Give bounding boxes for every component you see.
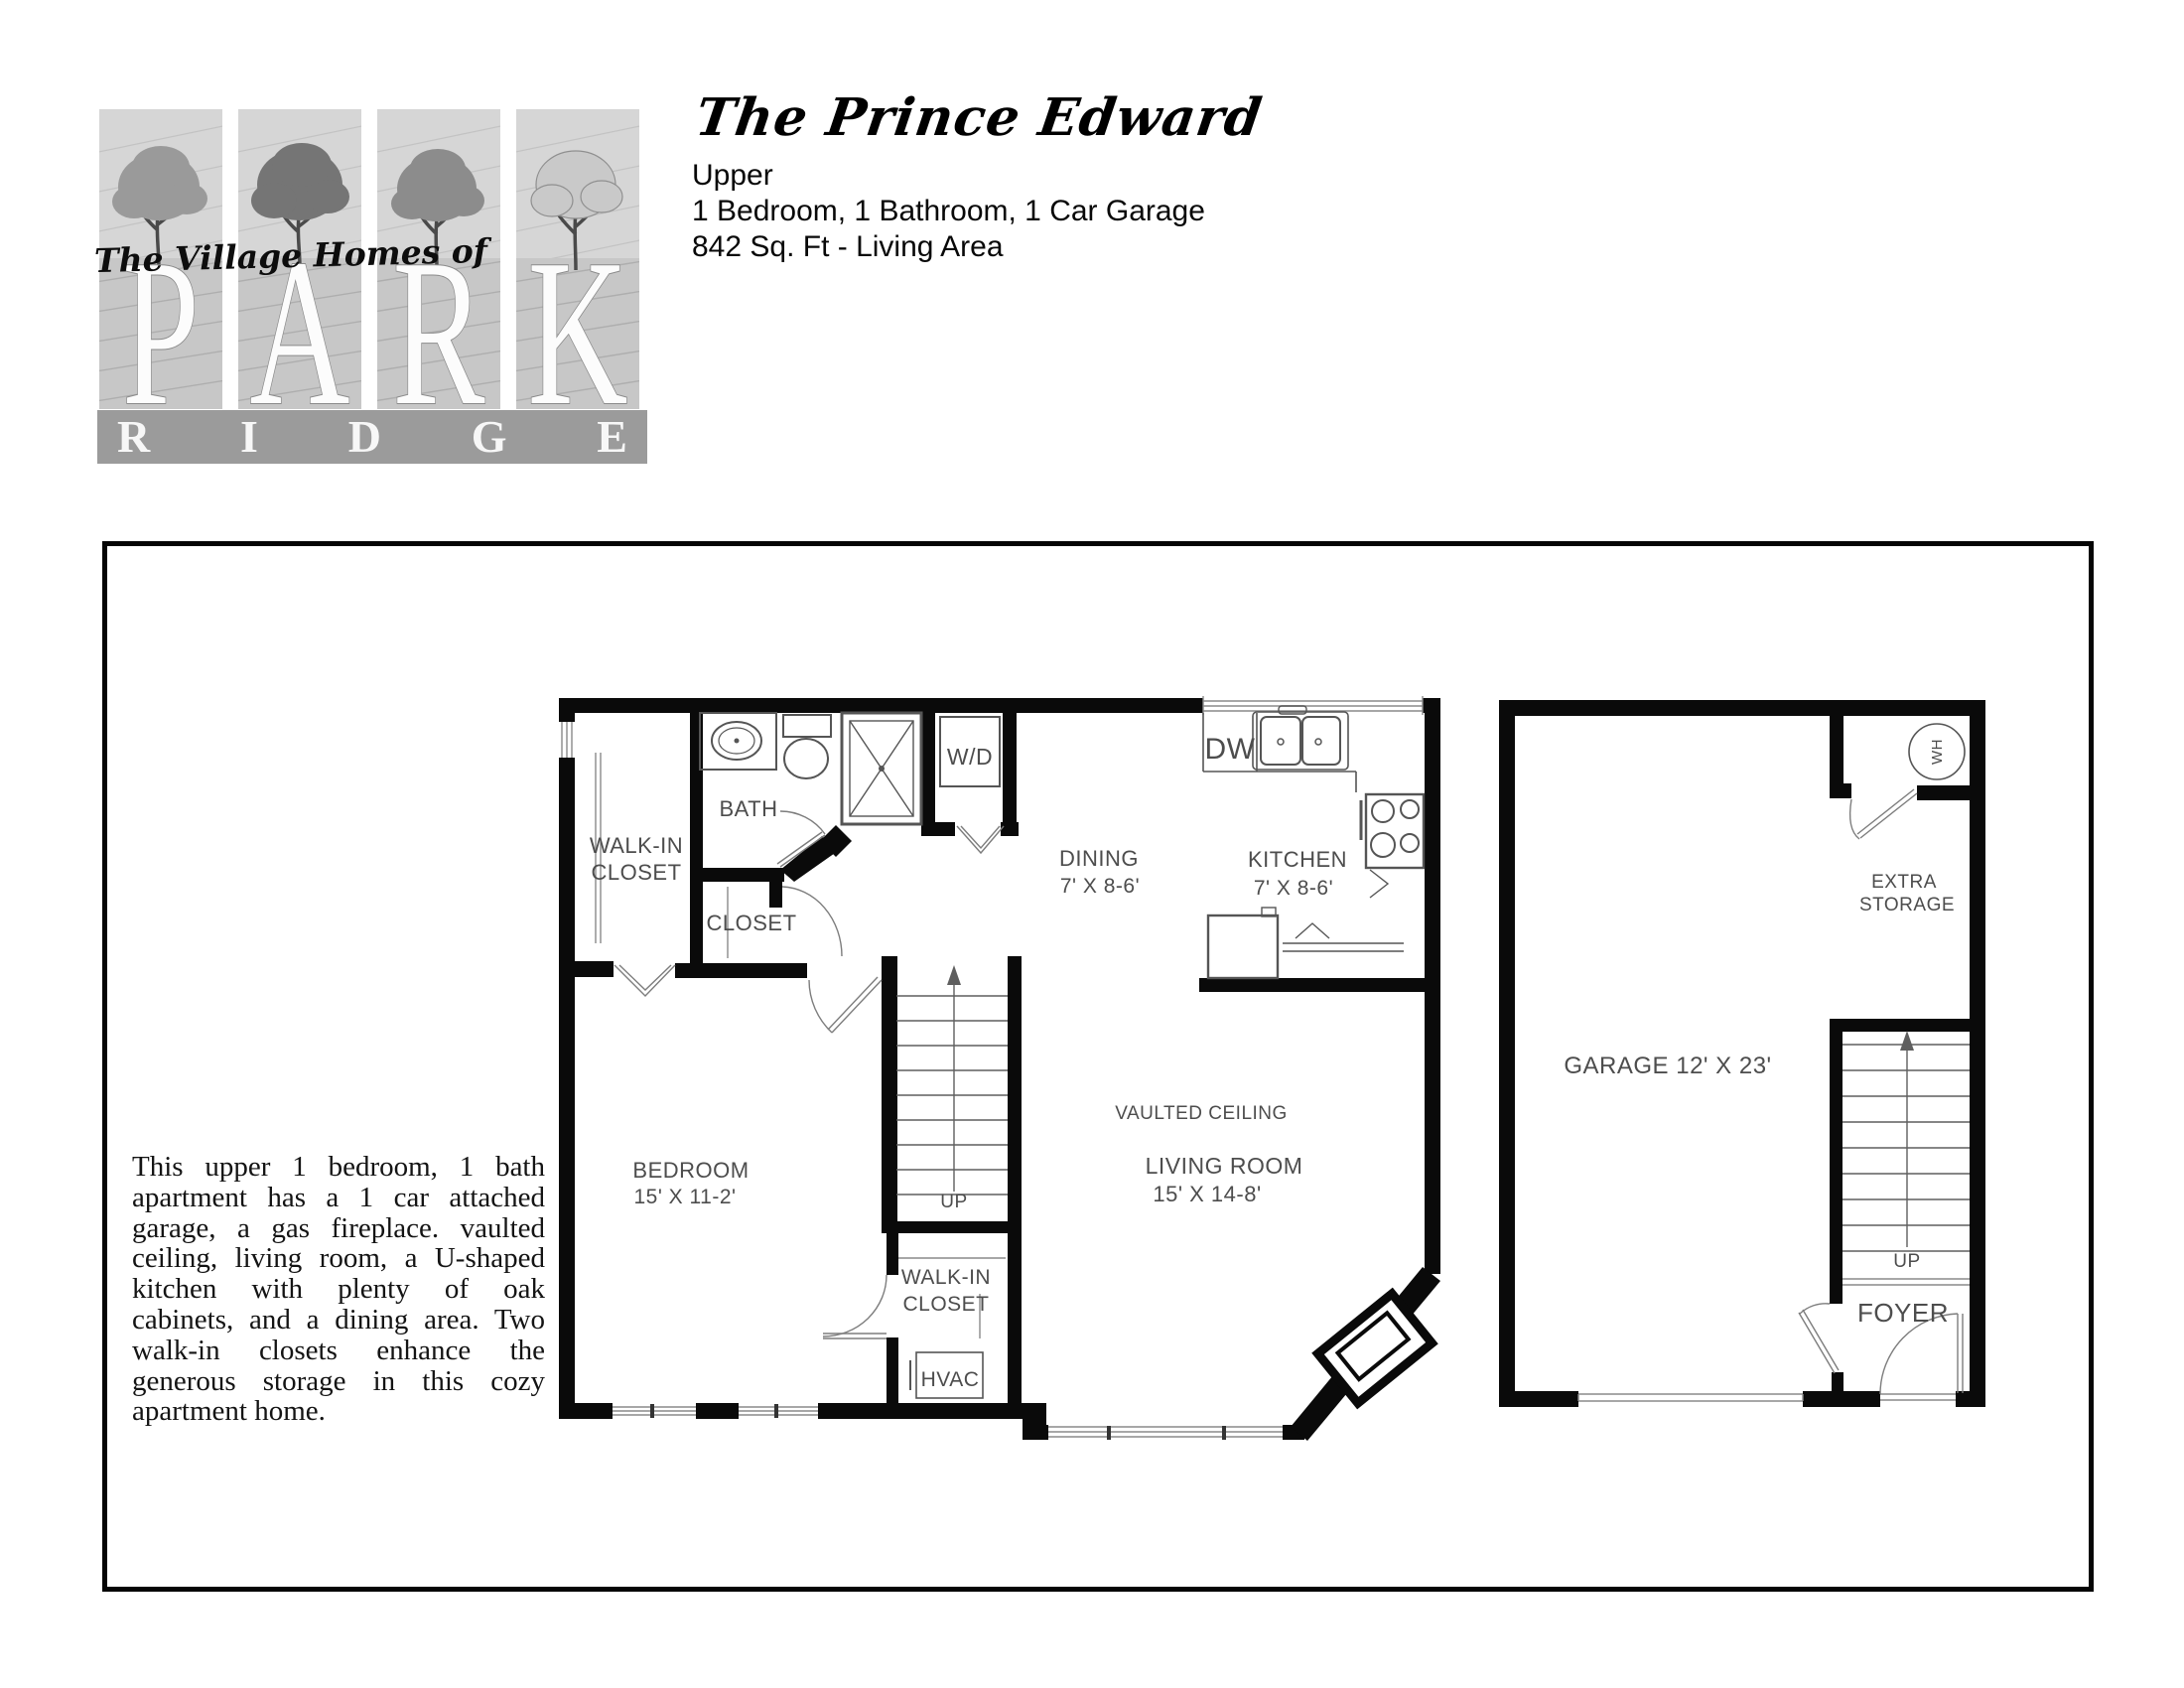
hvac-label: HVAC xyxy=(921,1368,980,1391)
room-dims-dining: 7' X 8-6' xyxy=(1060,875,1140,898)
appliance-label-dishwasher: DW xyxy=(1205,733,1256,766)
description-line: garage, a gas fireplace. vaulted xyxy=(132,1213,545,1244)
room-label-living-room: LIVING ROOM xyxy=(1146,1153,1303,1179)
room-label-dining: DINING xyxy=(1059,846,1139,871)
logo-letter: D xyxy=(348,410,381,464)
header: The Prince Edward Upper 1 Bedroom, 1 Bat… xyxy=(692,87,1258,265)
room-label-foyer: FOYER xyxy=(1857,1298,1949,1328)
room-label-kitchen: KITCHEN xyxy=(1248,847,1347,872)
description-line: cabinets, and a dining area. Two xyxy=(132,1305,545,1336)
vaulted-ceiling-label: VAULTED CEILING xyxy=(1115,1103,1288,1124)
logo-letter: K xyxy=(527,215,627,417)
logo-ridge-bar: R I D G E xyxy=(97,410,647,464)
logo-letter: E xyxy=(597,410,627,464)
plan-area: 842 Sq. Ft - Living Area xyxy=(692,229,1258,265)
logo-letter: R xyxy=(117,410,150,464)
description-paragraph: This upper 1 bedroom, 1 bath apartment h… xyxy=(132,1152,545,1427)
room-label-extra-storage: EXTRA xyxy=(1871,872,1937,893)
room-dims-kitchen: 7' X 8-6' xyxy=(1254,877,1333,900)
apartment-floorplan: WALK-IN CLOSET BATH W/D CLOSET DW DINING… xyxy=(551,688,1449,1445)
plan-title: The Prince Edward xyxy=(692,87,1266,148)
room-label-walkin-closet-top: CLOSET xyxy=(591,860,681,885)
description-line: This upper 1 bedroom, 1 bath xyxy=(132,1152,545,1183)
room-label-extra-storage: STORAGE xyxy=(1859,895,1955,915)
room-label-walkin-closet-top: WALK-IN xyxy=(590,833,683,858)
description-line: apartment home. xyxy=(132,1396,545,1427)
room-label-bath: BATH xyxy=(719,796,777,821)
room-label-bedroom: BEDROOM xyxy=(632,1158,749,1183)
plan-features: 1 Bedroom, 1 Bathroom, 1 Car Garage xyxy=(692,194,1258,229)
description-line: apartment has a 1 car attached xyxy=(132,1183,545,1213)
garage-floorplan: WH EXTRA STORAGE GARAGE 12' X 23' UP FOY… xyxy=(1492,693,1993,1413)
description-line: generous storage in this cozy xyxy=(132,1366,545,1397)
room-label-walkin-closet-bottom: WALK-IN xyxy=(901,1266,991,1289)
description-line: kitchen with plenty of oak xyxy=(132,1274,545,1305)
logo-letter: I xyxy=(240,410,258,464)
room-label-closet: CLOSET xyxy=(706,911,796,935)
room-label-walkin-closet-bottom: CLOSET xyxy=(902,1293,989,1316)
logo-tagline: The Village Homes of xyxy=(94,233,413,280)
stairs-up-label: UP xyxy=(1893,1251,1920,1272)
appliance-label-washer-dryer: W/D xyxy=(947,744,993,770)
brochure-page: P A R K The Village Homes of R I D G E T… xyxy=(0,0,2184,1688)
logo-letter: G xyxy=(472,410,507,464)
room-dims-living-room: 15' X 14-8' xyxy=(1153,1182,1261,1206)
water-heater-label: WH xyxy=(1929,739,1946,765)
stairs-up-label: UP xyxy=(940,1192,967,1212)
room-dims-bedroom: 15' X 11-2' xyxy=(633,1186,736,1208)
room-label-garage: GARAGE 12' X 23' xyxy=(1564,1053,1771,1079)
plan-floor: Upper xyxy=(692,158,1258,194)
description-line: ceiling, living room, a U-shaped xyxy=(132,1243,545,1274)
description-line: walk-in closets enhance the xyxy=(132,1336,545,1366)
